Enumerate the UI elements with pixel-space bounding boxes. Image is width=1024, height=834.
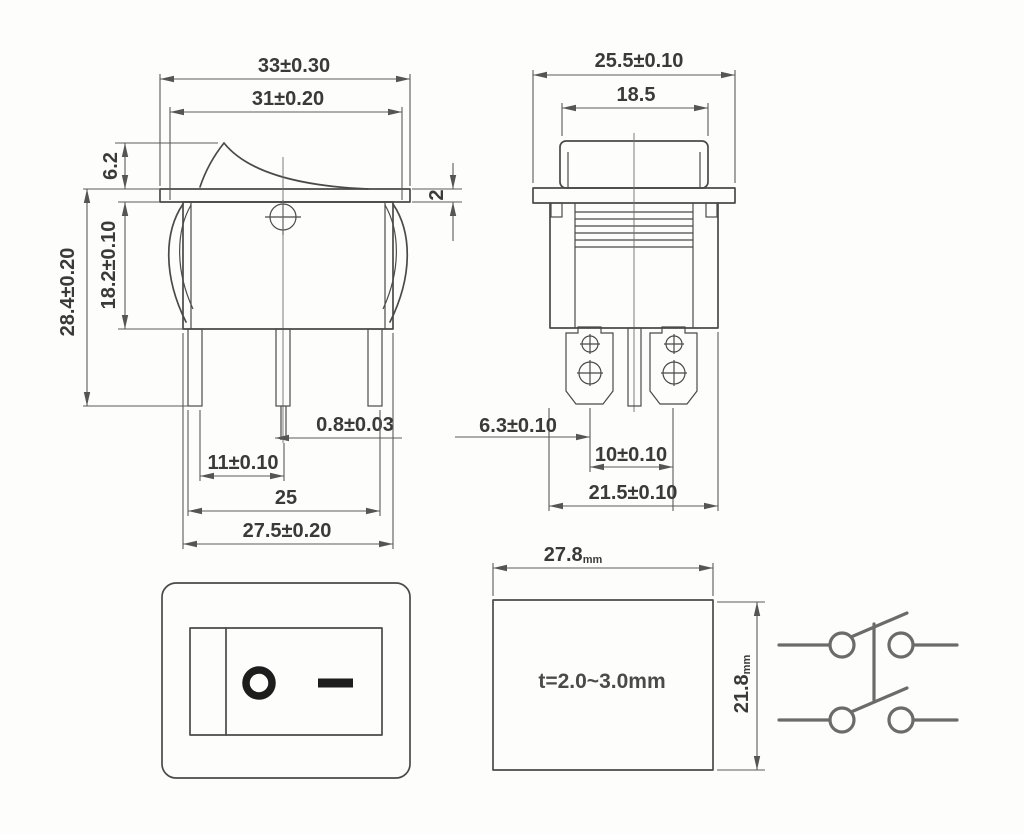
dim-flange-width: 33±0.30 — [258, 55, 330, 77]
dim-front-body-width: 21.5±0.10 — [589, 482, 678, 504]
panel-thickness-note: t=2.0~3.0mm — [538, 670, 665, 693]
hole-left-bottom-cross — [577, 360, 603, 386]
dim-cutout-width: 27.8mm — [544, 544, 603, 566]
schematic-leads — [779, 645, 957, 720]
front-view: 25.5±0.10 18.5 6.3±0.10 10±0.10 21.5±0.1… — [455, 50, 735, 511]
dim-terminal-pitch: 10±0.10 — [595, 444, 667, 466]
side-rocker-front-edge — [200, 143, 224, 187]
cutout-height-unit: mm — [741, 655, 753, 675]
face-rocker-opening — [190, 628, 382, 735]
dim-overall-height: 28.4±0.20 — [57, 248, 79, 337]
hole-left-top-cross — [580, 334, 600, 354]
front-terminal-center — [628, 328, 641, 406]
schematic-contact-top-right — [889, 633, 913, 657]
cutout-width-value: 27.8 — [544, 544, 583, 566]
dim-terminal-thickness: 0.8±0.03 — [316, 414, 394, 436]
side-rocker-curve — [224, 143, 368, 189]
terminal-center-tip — [281, 406, 286, 440]
terminal-left — [188, 329, 202, 406]
dim-upper-body-width: 31±0.20 — [252, 88, 324, 110]
cutout-width-unit: mm — [583, 554, 603, 566]
side-flange — [160, 189, 410, 202]
hole-right-top-cross — [664, 334, 684, 354]
cutout-height-value: 21.8 — [731, 674, 753, 713]
rocker-switch-drawing: 33±0.30 31±0.20 6.2 18.2±0.10 28.4±0.20 … — [0, 0, 1024, 834]
off-symbol-icon — [246, 670, 272, 696]
dim-terminal-gap: 11±0.10 — [207, 452, 278, 474]
technical-drawing-page: 33±0.30 31±0.20 6.2 18.2±0.10 28.4±0.20 … — [0, 0, 1024, 834]
panel-cutout-view: t=2.0~3.0mm 27.8mm 21.8mm — [493, 544, 765, 770]
circuit-schematic-icon — [779, 613, 957, 732]
ext-31 — [170, 107, 402, 200]
dim-body-width: 27.5±0.20 — [243, 520, 332, 542]
dim-actuator-height: 6.2 — [100, 152, 122, 180]
ext-18_2 — [118, 202, 183, 329]
front-tab-left — [551, 203, 562, 217]
face-view — [162, 583, 410, 778]
terminal-right — [368, 329, 382, 406]
dim-body-depth: 18.2±0.10 — [98, 221, 120, 310]
ext-27_5 — [183, 333, 393, 549]
front-tab-right — [706, 203, 717, 217]
dim-cutout-height: 21.8mm — [731, 655, 753, 714]
face-bezel — [162, 583, 410, 778]
dim-terminal-offset: 6.3±0.10 — [479, 415, 557, 437]
side-body — [183, 202, 393, 329]
hole-right-bottom-cross — [661, 360, 687, 386]
dim-flange-thickness: 2 — [426, 189, 448, 200]
side-view: 33±0.30 31±0.20 6.2 18.2±0.10 28.4±0.20 … — [57, 55, 462, 549]
side-body-inner-lines — [191, 202, 385, 329]
dim-rocker-width: 18.5 — [617, 84, 656, 106]
dim-terminal-span: 25 — [275, 487, 297, 509]
dim-front-flange-width: 25.5±0.10 — [595, 50, 684, 72]
schematic-contact-bottom-right — [889, 708, 913, 732]
